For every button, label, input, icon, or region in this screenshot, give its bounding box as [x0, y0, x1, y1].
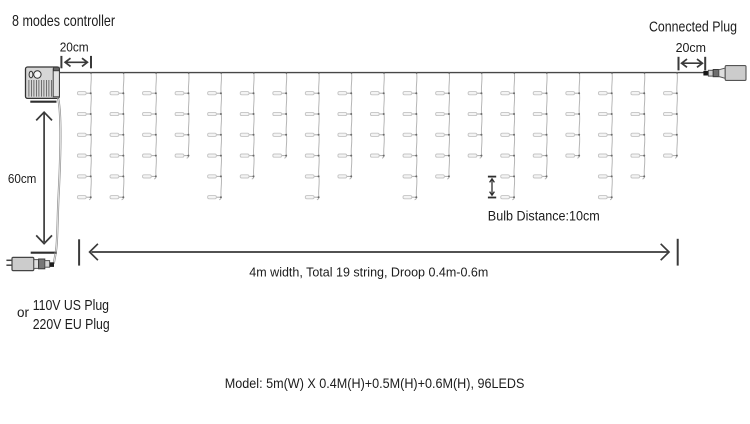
svg-text:110V US Plug: 110V US Plug	[33, 298, 109, 314]
svg-text:8 modes controller: 8 modes controller	[12, 13, 116, 30]
svg-text:Model: 5m(W) X 0.4M(H)+0.5M(H): Model: 5m(W) X 0.4M(H)+0.5M(H)+0.6M(H), …	[225, 376, 525, 391]
svg-text:220V EU Plug: 220V EU Plug	[33, 317, 110, 333]
svg-text:4m width, Total 19 string, Dro: 4m width, Total 19 string, Droop 0.4m-0.…	[249, 264, 488, 279]
svg-text:Connected Plug: Connected Plug	[649, 20, 737, 36]
svg-text:20cm: 20cm	[676, 41, 706, 55]
svg-text:20cm: 20cm	[60, 41, 89, 55]
svg-text:Bulb Distance:10cm: Bulb Distance:10cm	[488, 209, 600, 224]
svg-text:60cm: 60cm	[8, 172, 37, 186]
svg-text:or: or	[17, 304, 29, 320]
